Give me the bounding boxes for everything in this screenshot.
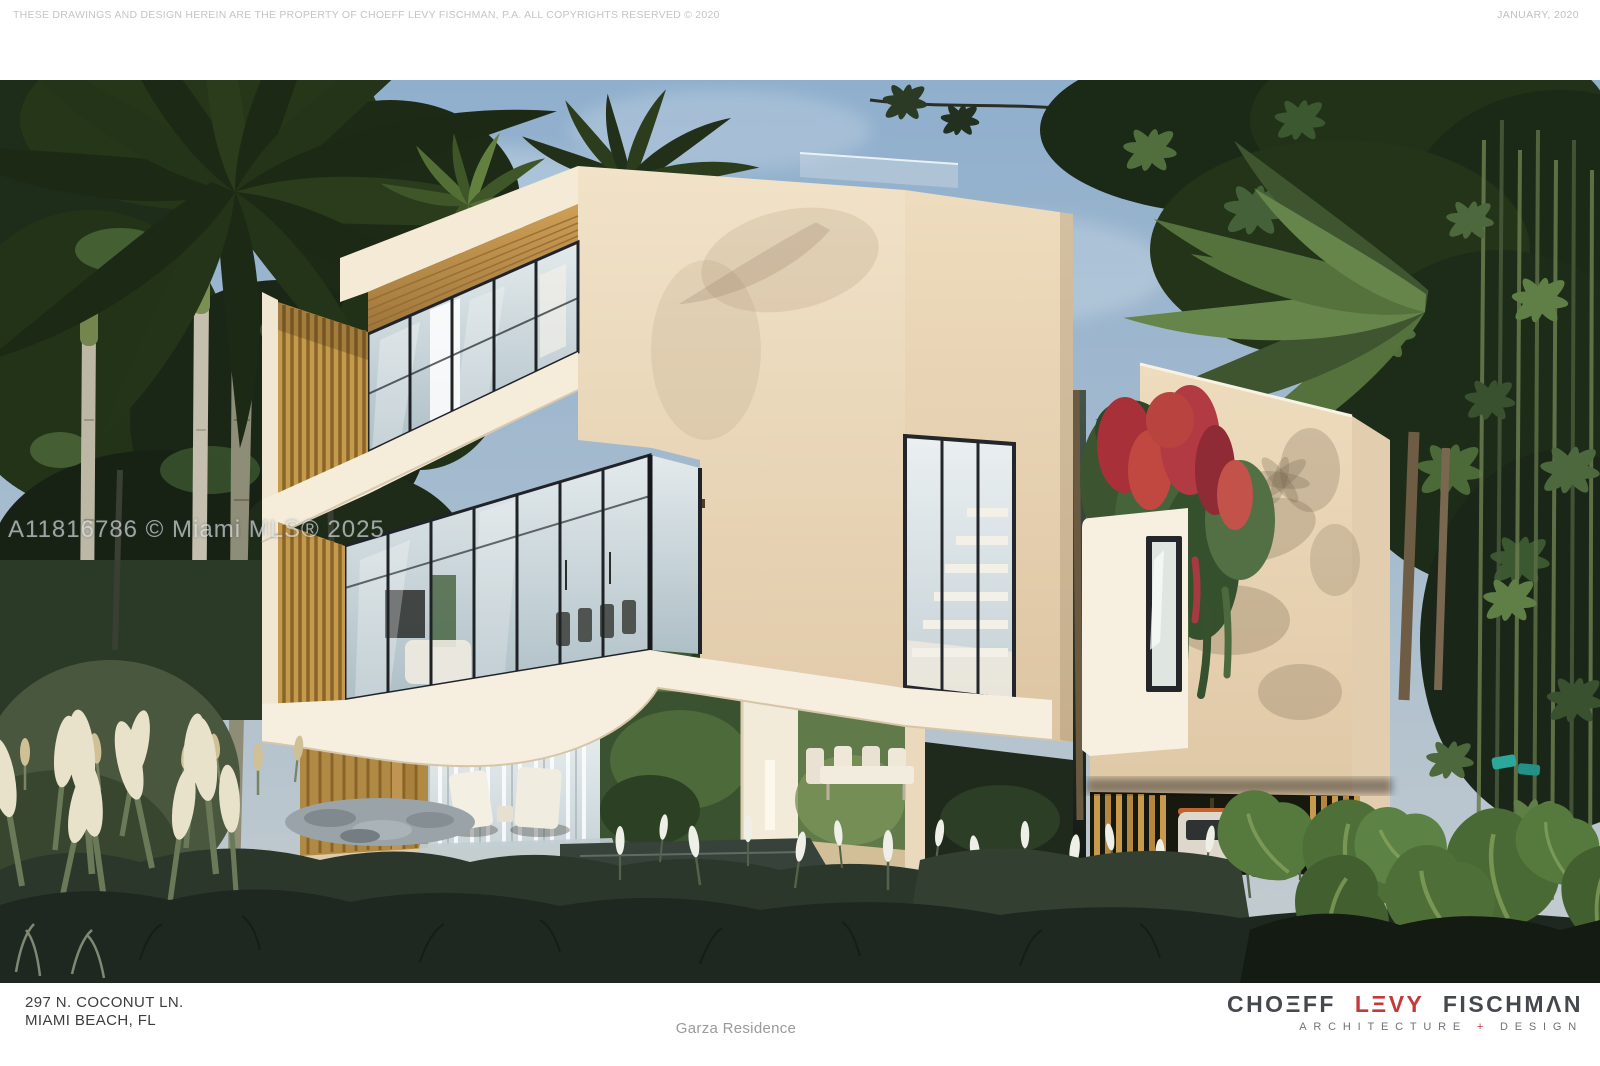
narrow-window [1146,536,1182,692]
tagline-design: DESIGN [1500,1021,1583,1033]
firm-logo-tagline: ARCHITECTURE + DESIGN [1227,1021,1583,1033]
logo-word-levy: LΞVY [1355,991,1424,1017]
tagline-architecture: ARCHITECTURE [1299,1021,1467,1033]
logo-word-choeff: CHOΞFF [1227,991,1336,1017]
firm-logo-wordmark: CHOΞFF LΞVY FISCHMΛN [1227,991,1583,1018]
wood-slat-box-lower [278,522,345,724]
stair-corner-glass [905,436,1014,700]
tagline-plus-icon: + [1477,1021,1490,1033]
presentation-sheet: THESE DRAWINGS AND DESIGN HEREIN ARE THE… [0,0,1600,1066]
logo-word-fischman: FISCHMΛN [1443,991,1583,1017]
architectural-rendering: A11816786 © Miami MLS® 2025 [0,80,1600,983]
stone-paving [285,798,475,846]
copyright-disclaimer: THESE DRAWINGS AND DESIGN HEREIN ARE THE… [13,9,720,21]
firm-logo: CHOΞFF LΞVY FISCHMΛN ARCHITECTURE + DESI… [1227,991,1583,1033]
address-line-1: 297 N. COCONUT LN. [25,994,184,1012]
mls-watermark: A11816786 © Miami MLS® 2025 [8,516,385,544]
sheet-date: JANUARY, 2020 [1497,9,1579,21]
